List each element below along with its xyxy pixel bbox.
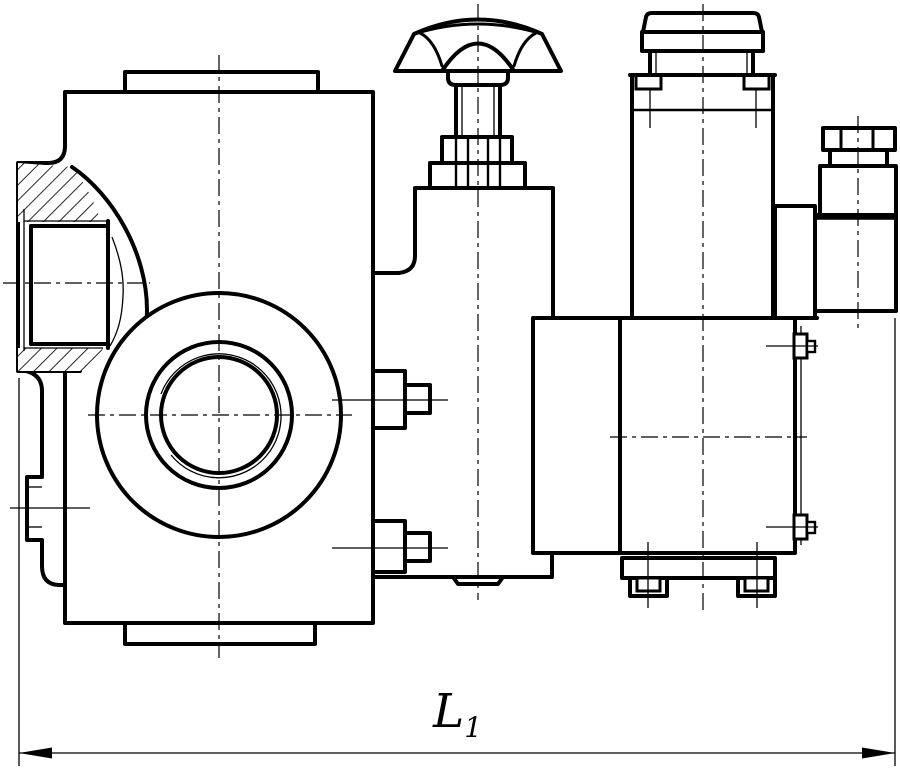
arrowhead-left	[19, 748, 52, 759]
weld-notch-left	[636, 77, 661, 89]
connector-housing	[815, 215, 896, 311]
pilot-body-outline	[373, 188, 553, 317]
test-port-cap	[405, 385, 430, 413]
top-boss	[125, 72, 318, 92]
locknut-upper	[442, 137, 512, 163]
connector-bracket	[775, 206, 815, 318]
test-port-cap	[405, 533, 430, 561]
drawing-canvas: L1	[0, 0, 900, 774]
bottom-boss	[125, 623, 315, 644]
cable-gland-nut[interactable]	[823, 128, 895, 150]
valve-assembly-drawing: L1	[0, 0, 900, 774]
electrical-connector	[775, 116, 896, 330]
arrowhead-right	[862, 748, 895, 759]
solenoid-body	[533, 318, 795, 553]
weld-notch-right	[744, 77, 769, 89]
dimension-label: L1	[432, 684, 482, 744]
